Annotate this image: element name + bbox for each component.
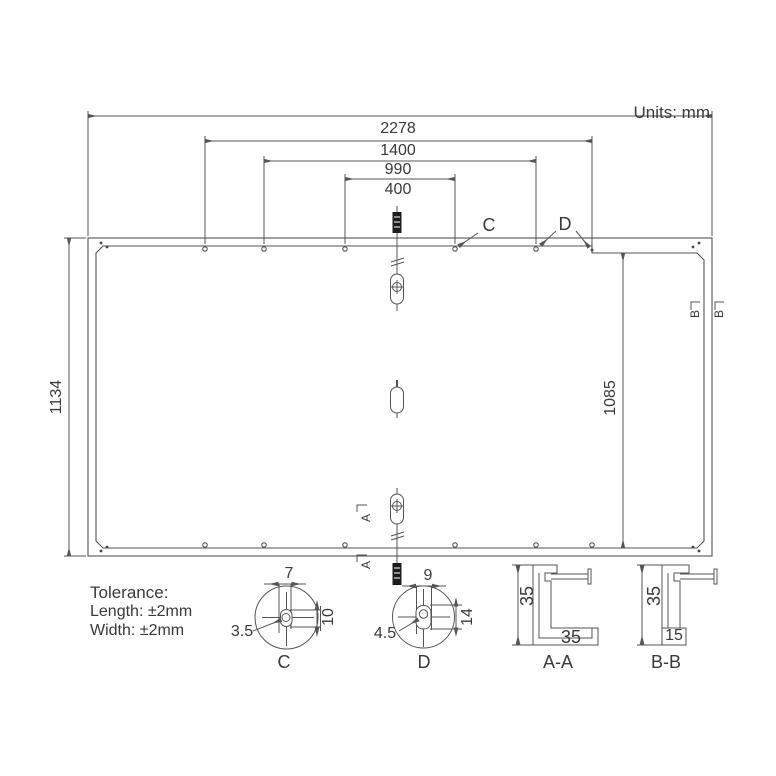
section-bb-width: 15 <box>665 628 683 644</box>
dim-width-1400: 1400 <box>380 143 416 159</box>
detail-d-callout: D <box>559 215 572 233</box>
tolerance-length: Length: ±2mm <box>90 604 192 620</box>
detail-c-label: C <box>278 653 291 671</box>
dim-height-side: 1085 <box>603 380 619 416</box>
tolerance-width: Width: ±2mm <box>90 623 184 639</box>
detail-c-slot-width: 7 <box>285 566 294 582</box>
centerline-features <box>390 206 404 563</box>
detail-d-slot-width: 9 <box>424 568 433 584</box>
detail-marker-arrows <box>357 231 724 562</box>
dim-width-990: 990 <box>385 162 412 178</box>
tolerance-title: Tolerance: <box>90 584 168 601</box>
mounting-slot-middle <box>391 387 404 413</box>
detail-d-label: D <box>418 653 431 671</box>
section-bb-label: B-B <box>651 653 681 671</box>
dim-height-total: 1134 <box>49 380 65 414</box>
section-bb-height: 35 <box>645 586 663 606</box>
connector-bottom <box>393 563 402 585</box>
dim-width-total: 2278 <box>380 121 416 137</box>
section-a-marker-top: A <box>360 514 372 522</box>
detail-c-callout: C <box>483 216 496 234</box>
detail-c-radius: 3.5 <box>231 624 253 640</box>
detail-c-drawing <box>253 584 321 649</box>
detail-d-drawing <box>393 586 463 648</box>
detail-d-radius: 4.5 <box>374 626 396 642</box>
detail-d-slot-height: 14 <box>460 608 476 626</box>
section-b-marker-inner: B <box>689 310 701 318</box>
detail-c-slot-height: 10 <box>321 608 337 626</box>
section-aa-width: 35 <box>561 628 581 646</box>
section-aa-height: 35 <box>518 586 536 606</box>
technical-drawing-page: Units: mm 2278 1400 990 400 1134 1085 C … <box>0 0 776 776</box>
units-label: Units: mm <box>634 103 711 123</box>
section-aa-label: A-A <box>543 653 573 671</box>
section-a-marker-bottom: A <box>360 561 372 569</box>
dim-width-400: 400 <box>385 182 412 198</box>
section-b-marker-outer: B <box>713 310 725 318</box>
